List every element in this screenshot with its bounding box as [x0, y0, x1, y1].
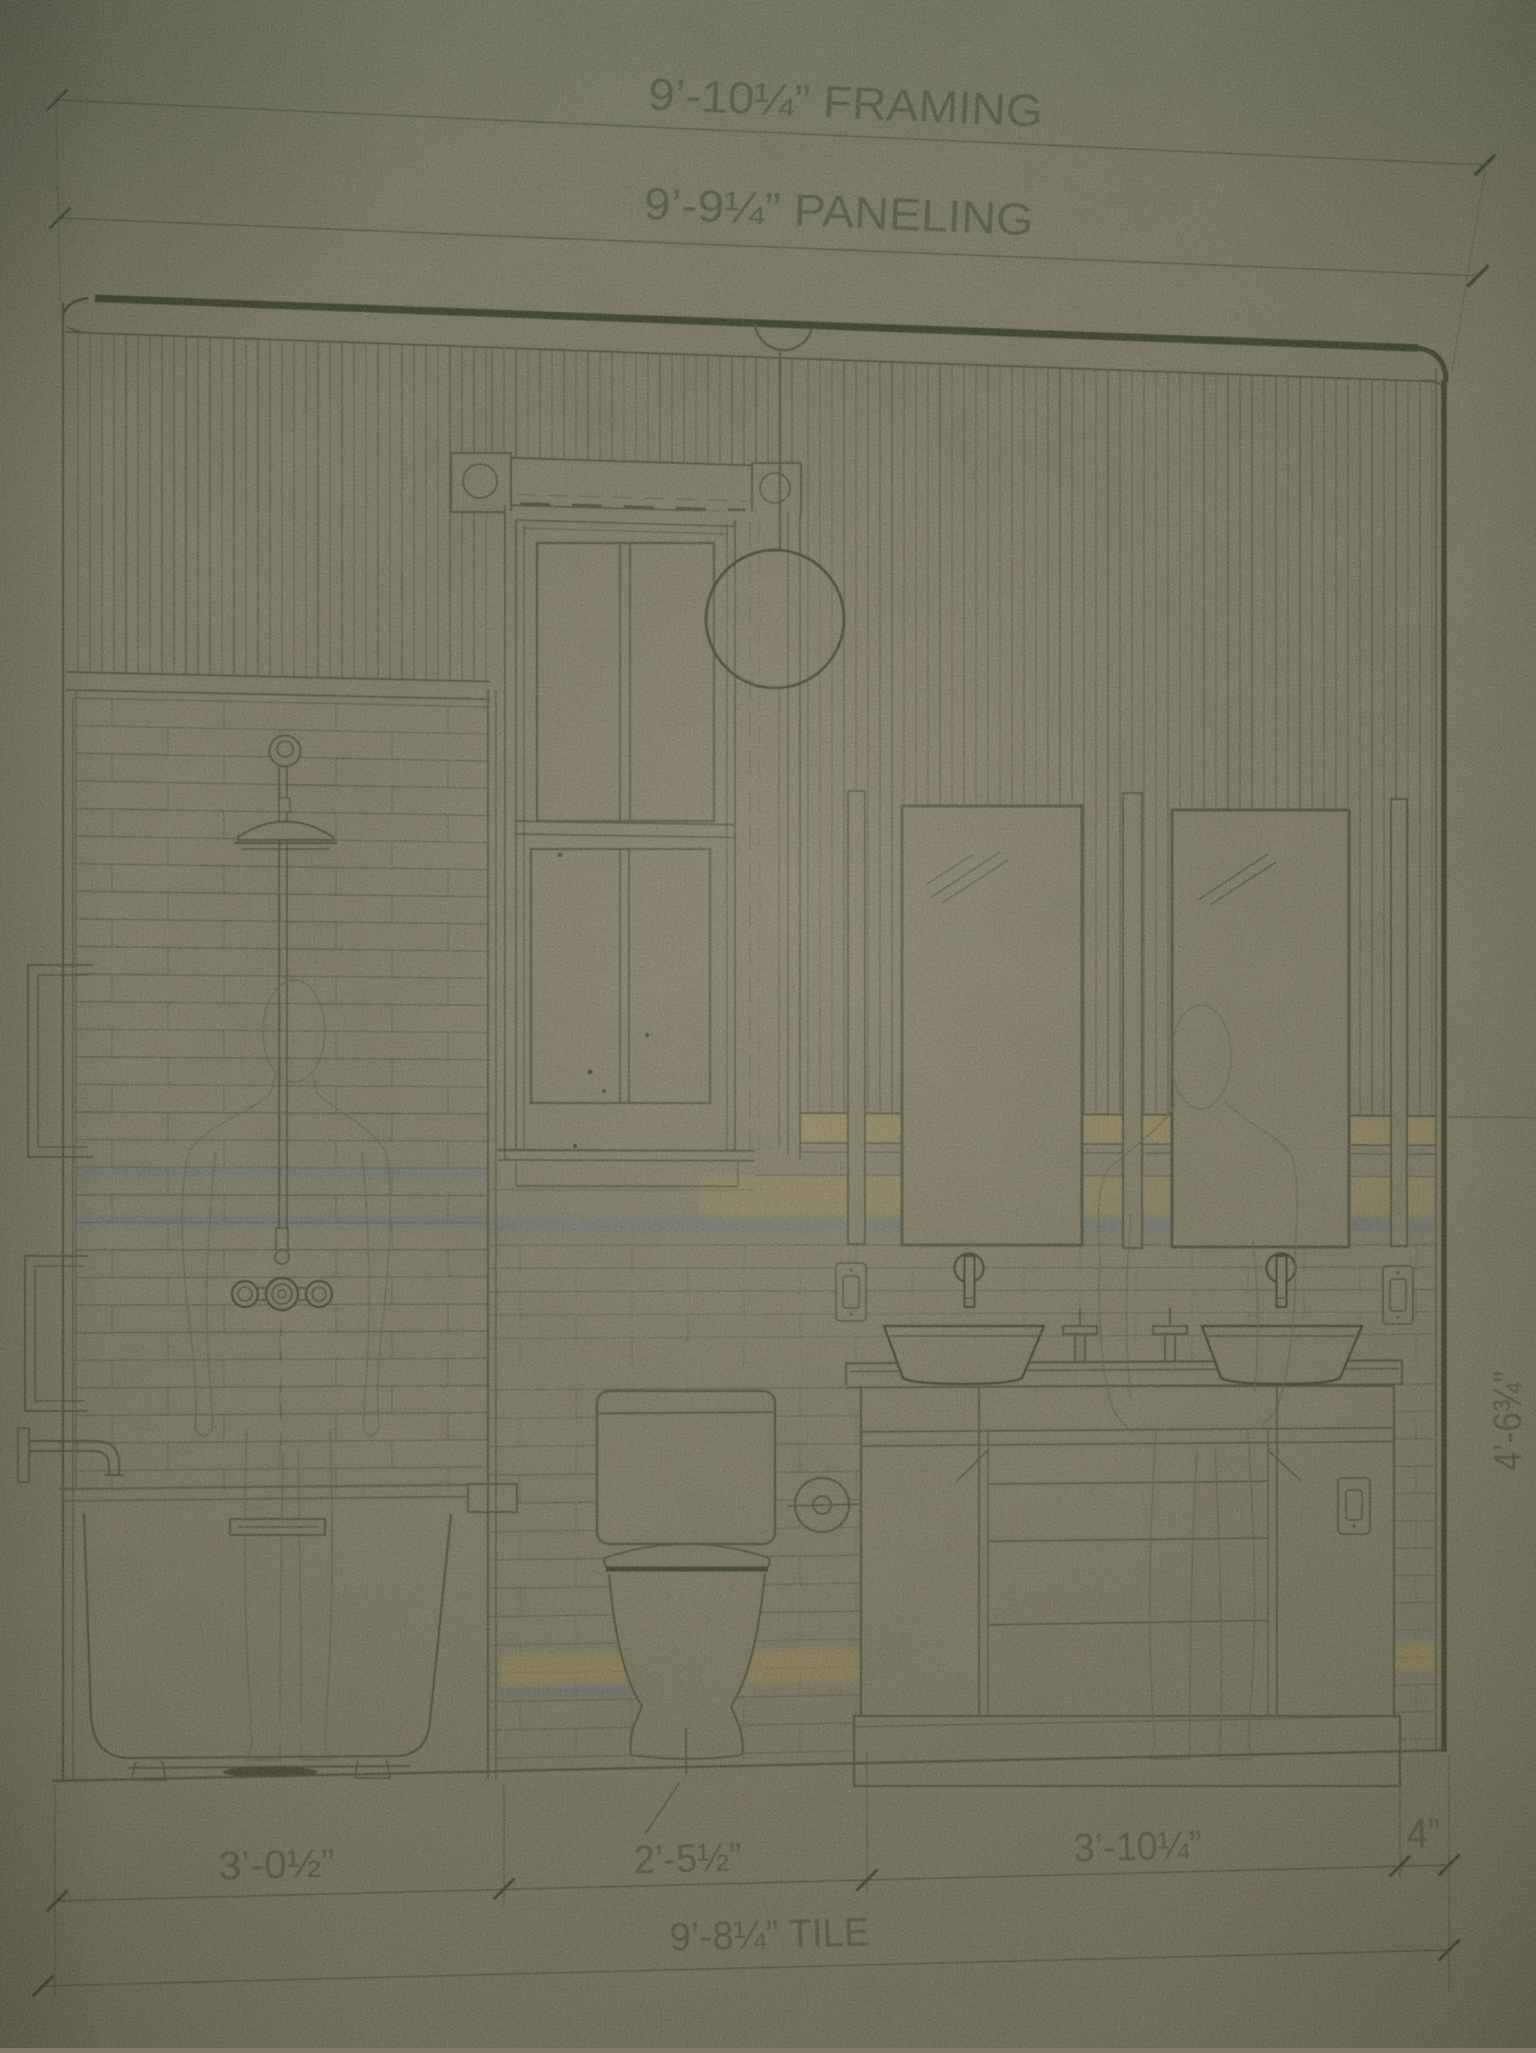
svg-text:9’-9¼” PANELING: 9’-9¼” PANELING [643, 178, 1035, 245]
svg-text:4’-6¾”: 4’-6¾” [1486, 1371, 1530, 1471]
svg-text:4”: 4” [1406, 1812, 1441, 1857]
svg-text:9’-10¼” FRAMING: 9’-10¼” FRAMING [647, 68, 1044, 136]
svg-text:2’-5½”: 2’-5½” [633, 1836, 742, 1883]
svg-text:3’-10¼”: 3’-10¼” [1073, 1823, 1202, 1870]
svg-text:9’-8¼” TILE: 9’-8¼” TILE [669, 1910, 870, 1959]
svg-text:3’-0½”: 3’-0½” [218, 1841, 335, 1888]
